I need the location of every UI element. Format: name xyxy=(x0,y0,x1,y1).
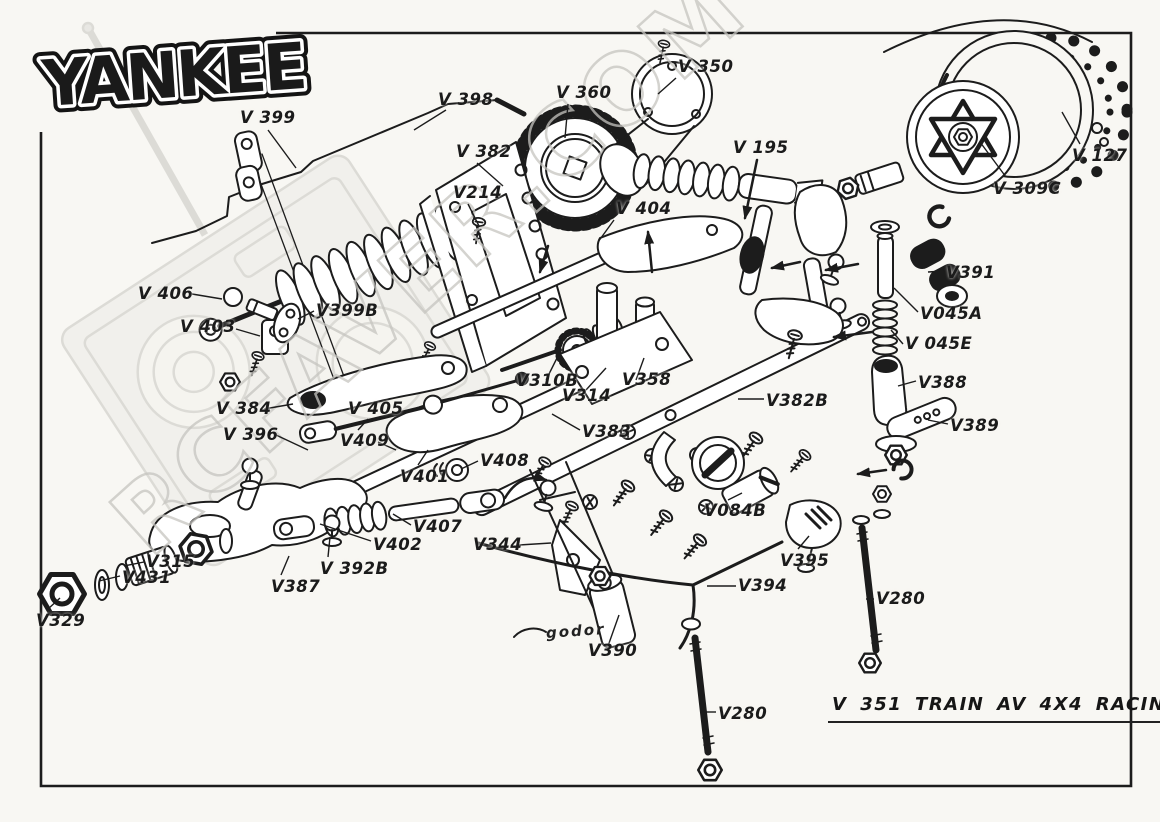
part-label: V395 xyxy=(780,551,829,570)
part-label: V 309C xyxy=(993,179,1061,198)
part-label: V 396 xyxy=(223,425,278,444)
part-label: V 360 xyxy=(556,83,611,102)
part-label: V408 xyxy=(480,451,529,470)
part-label: V214 xyxy=(453,183,502,202)
part-label: V280 xyxy=(876,589,925,608)
part-label: V 404 xyxy=(616,199,671,218)
part-label: V 127 xyxy=(1072,146,1127,165)
part-label: V 350 xyxy=(678,57,733,76)
part-label: V 195 xyxy=(733,138,788,157)
part-label: V314 xyxy=(562,386,611,405)
part-label: V 406 xyxy=(138,284,193,303)
part-label: V280 xyxy=(718,704,767,723)
part-label: V402 xyxy=(373,535,422,554)
part-label: V399B xyxy=(316,301,378,320)
part-label: V390 xyxy=(588,641,637,660)
part-label: V431 xyxy=(122,568,171,587)
part-label: V382B xyxy=(766,391,828,410)
part-label: V 405 xyxy=(348,399,403,418)
part-label: V401 xyxy=(400,467,449,486)
part-label: V 398 xyxy=(438,90,493,109)
part-label: V387 xyxy=(271,577,320,596)
part-label: V409 xyxy=(340,431,389,450)
part-label: V389 xyxy=(950,416,999,435)
part-label: V391 xyxy=(946,263,995,282)
part-label: V383 xyxy=(582,422,631,441)
catalog-page: RCFAVER.COM YANKEE YANKEE V 399V 398V 36… xyxy=(0,0,1160,822)
part-label: V 403 xyxy=(180,317,235,336)
part-label: V388 xyxy=(918,373,967,392)
part-label: V084B xyxy=(704,501,766,520)
part-label: V344 xyxy=(473,535,522,554)
part-label: V045A xyxy=(920,304,982,323)
part-label: V 384 xyxy=(216,399,271,418)
part-label: V 382 xyxy=(456,142,511,161)
part-label: V407 xyxy=(413,517,462,536)
part-label: V358 xyxy=(622,370,671,389)
part-label: V 392B xyxy=(320,559,389,578)
title-block: V 351 TRAIN AV 4X4 RACING 86 xyxy=(828,694,1160,723)
part-label: V 399 xyxy=(240,108,295,127)
part-label: V329 xyxy=(36,611,85,630)
part-label: V394 xyxy=(738,576,787,595)
part-label: V 045E xyxy=(905,334,972,353)
